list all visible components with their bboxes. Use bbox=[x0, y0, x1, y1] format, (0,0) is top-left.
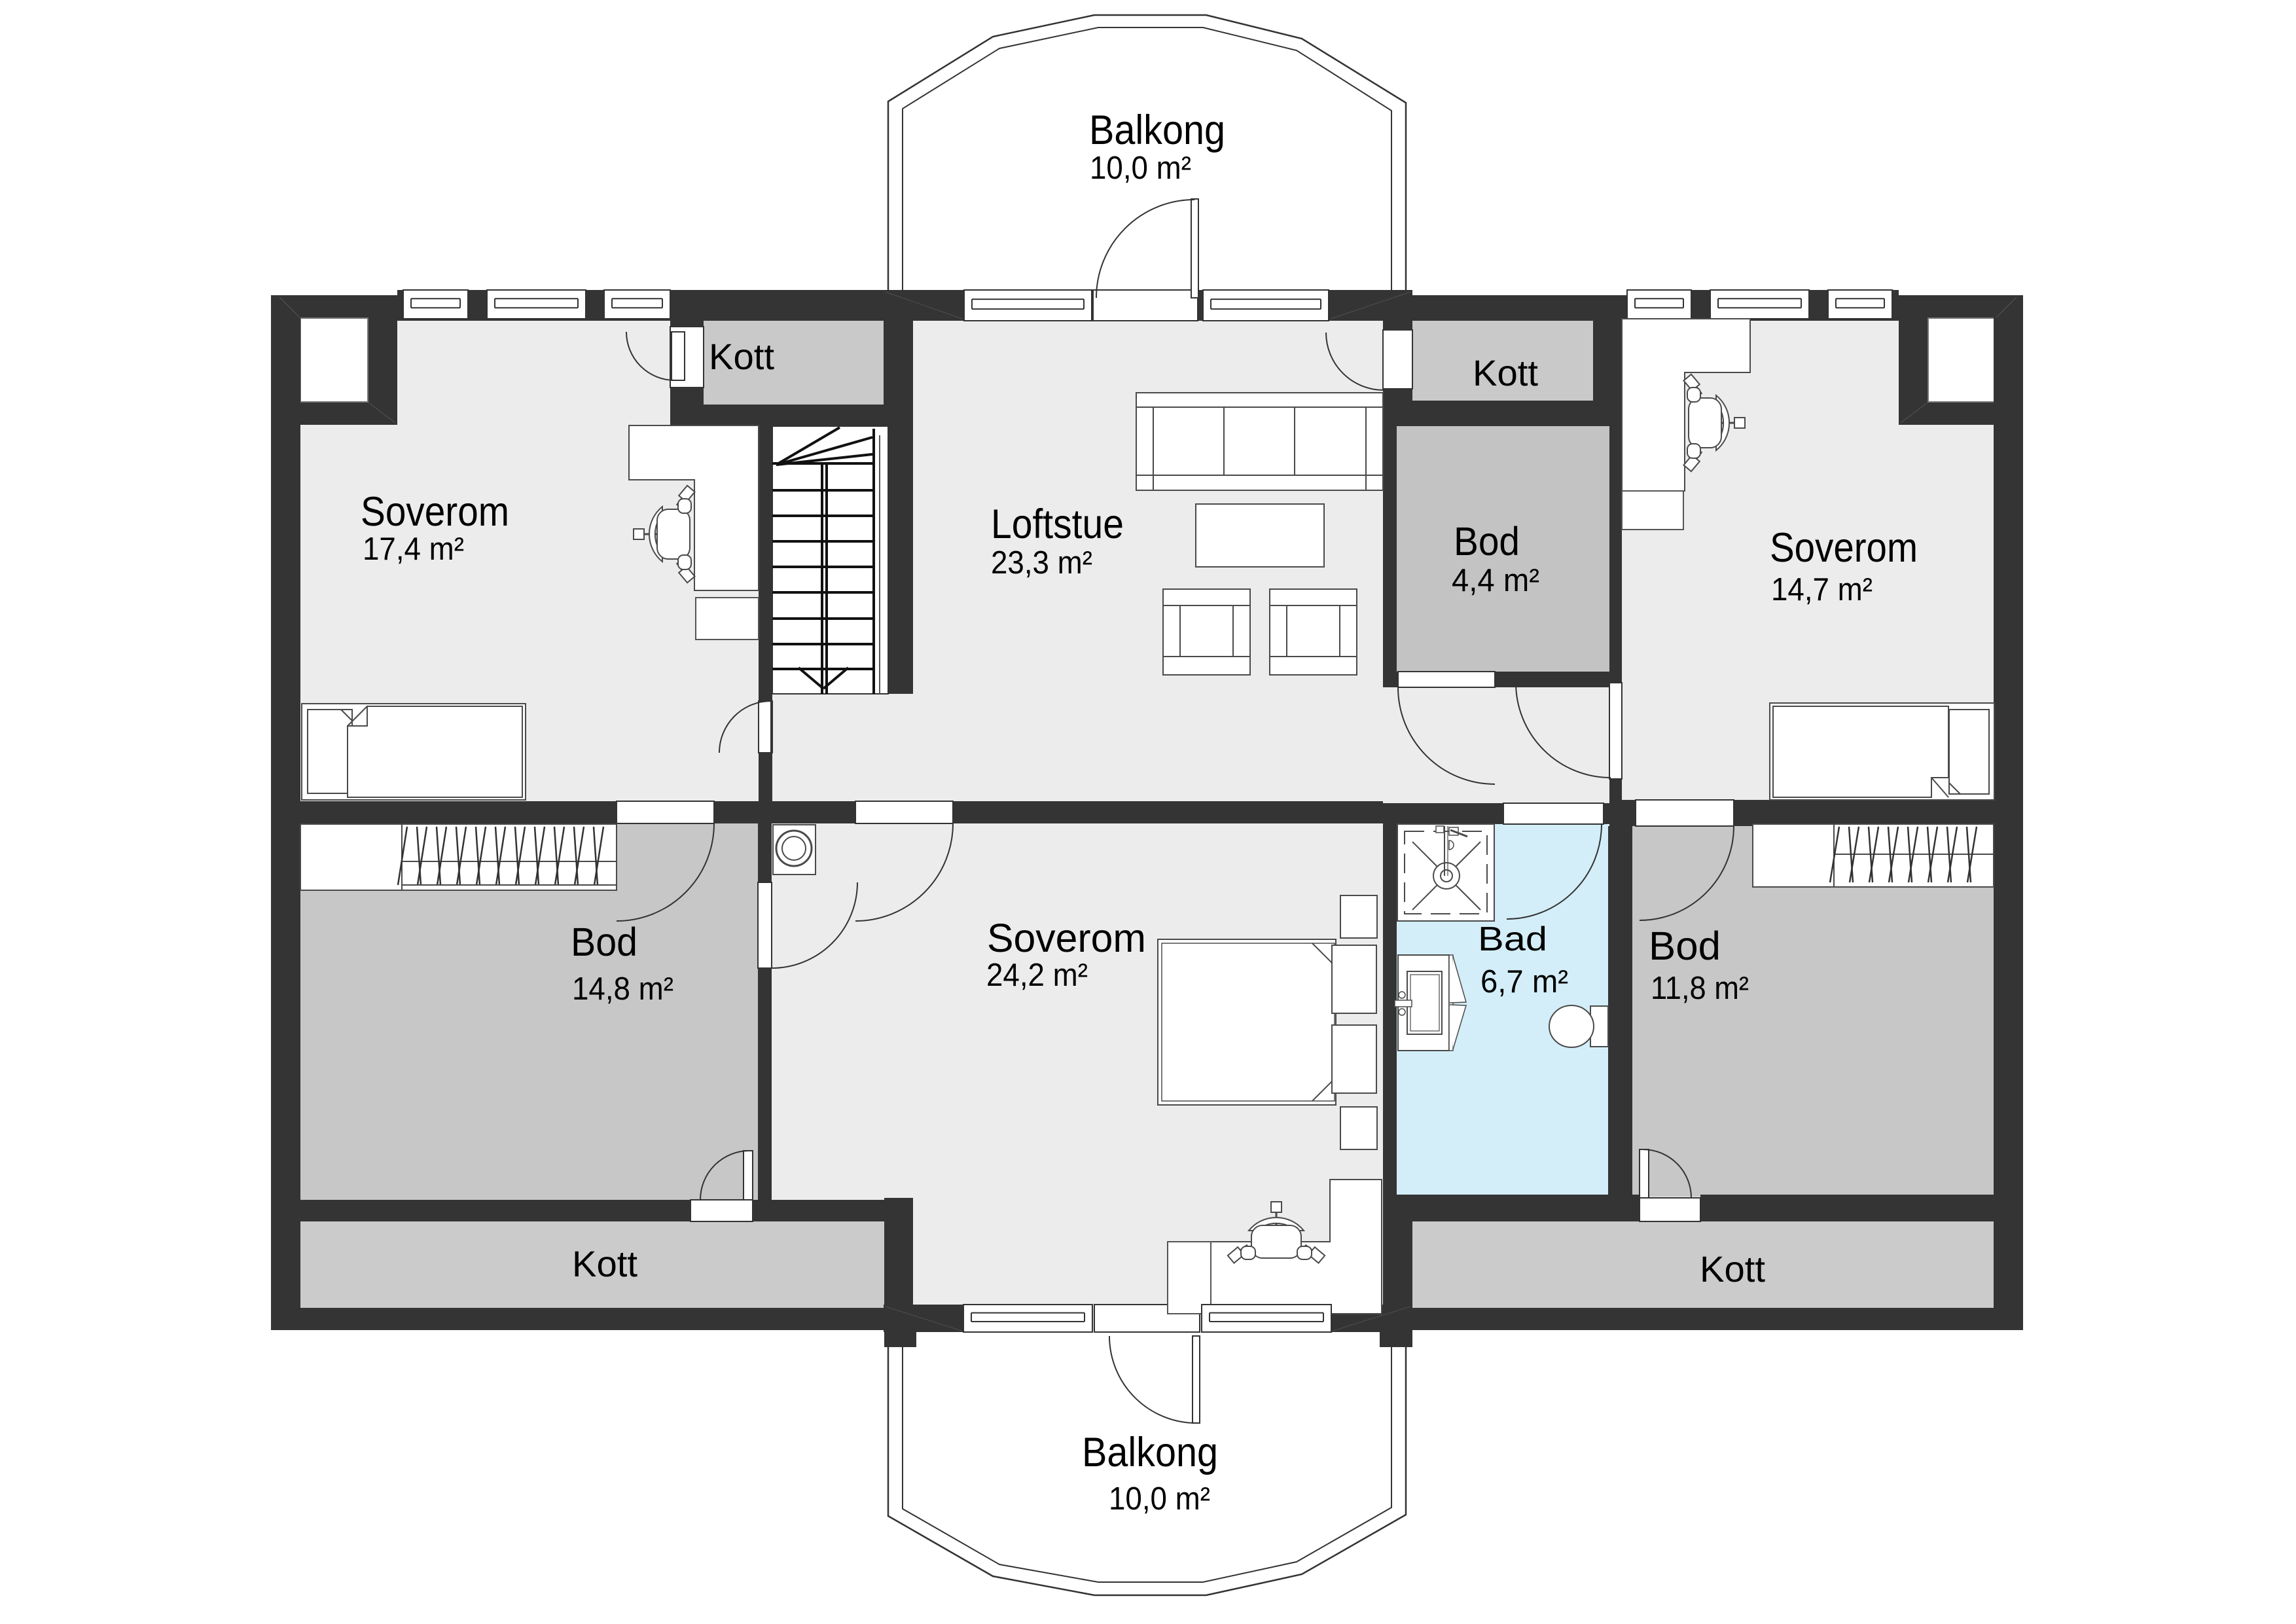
svg-text:Soverom: Soverom bbox=[361, 489, 509, 535]
svg-text:Kott: Kott bbox=[1473, 352, 1538, 393]
svg-text:17,4 m²: 17,4 m² bbox=[363, 532, 464, 567]
svg-text:Kott: Kott bbox=[709, 336, 774, 377]
svg-text:4,4 m²: 4,4 m² bbox=[1452, 563, 1539, 598]
svg-text:Soverom: Soverom bbox=[1770, 525, 1918, 571]
svg-text:10,0 m²: 10,0 m² bbox=[1090, 151, 1191, 186]
svg-text:Bod: Bod bbox=[571, 920, 637, 964]
svg-text:Loftstue: Loftstue bbox=[991, 501, 1124, 547]
svg-text:Soverom: Soverom bbox=[987, 916, 1146, 960]
svg-text:Balkong: Balkong bbox=[1082, 1430, 1218, 1475]
svg-text:Bod: Bod bbox=[1454, 519, 1520, 564]
svg-text:Balkong: Balkong bbox=[1089, 107, 1225, 153]
svg-text:Kott: Kott bbox=[572, 1243, 637, 1284]
svg-text:Kott: Kott bbox=[1700, 1248, 1765, 1290]
svg-text:24,2 m²: 24,2 m² bbox=[986, 958, 1088, 993]
svg-text:Bad: Bad bbox=[1478, 920, 1547, 958]
svg-text:23,3 m²: 23,3 m² bbox=[991, 545, 1092, 581]
svg-text:14,8 m²: 14,8 m² bbox=[572, 971, 673, 1007]
svg-text:10,0 m²: 10,0 m² bbox=[1109, 1481, 1210, 1517]
svg-text:Bod: Bod bbox=[1649, 924, 1721, 968]
svg-text:6,7 m²: 6,7 m² bbox=[1480, 964, 1568, 1000]
svg-text:14,7 m²: 14,7 m² bbox=[1771, 572, 1873, 607]
svg-text:11,8 m²: 11,8 m² bbox=[1651, 971, 1749, 1006]
